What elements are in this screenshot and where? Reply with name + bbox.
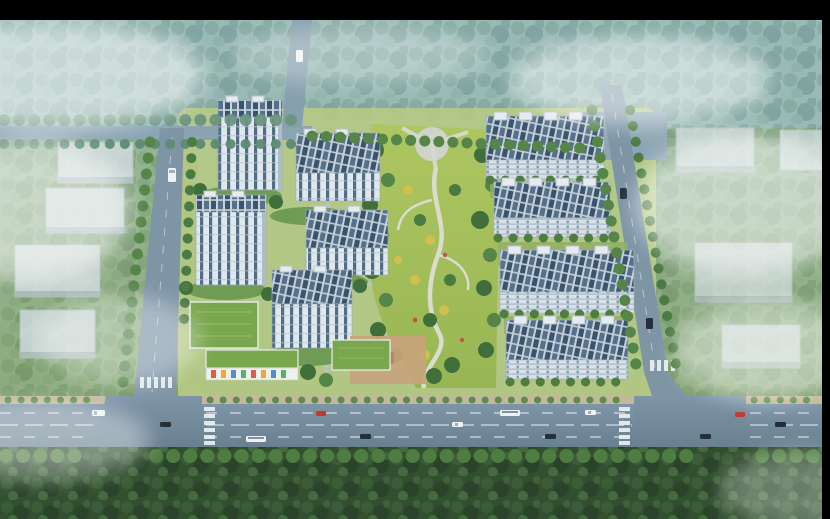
letterbox-frame xyxy=(0,0,830,519)
dark-car xyxy=(620,188,627,199)
tower-5 xyxy=(272,266,352,348)
tree-clump xyxy=(300,364,316,380)
white-truck xyxy=(168,168,176,182)
tree-clump xyxy=(426,368,442,384)
slab-row-2 xyxy=(494,178,610,238)
tower-4 xyxy=(306,206,388,275)
white-car xyxy=(585,410,596,415)
green-roof-building-3 xyxy=(332,340,390,370)
slab-row-4 xyxy=(506,316,628,382)
red-car xyxy=(735,412,745,417)
tower-2 xyxy=(196,191,266,285)
east-intersection xyxy=(634,396,746,447)
dark-car xyxy=(545,434,556,439)
bus xyxy=(246,436,266,442)
bus xyxy=(500,410,520,416)
aerial-canvas xyxy=(0,20,822,519)
green-roof-building-2-kindergarten xyxy=(206,350,298,380)
aerial-rendering xyxy=(0,20,822,519)
dark-car xyxy=(360,434,371,439)
slab-row-1 xyxy=(486,112,604,180)
dark-car xyxy=(160,422,171,427)
white-car xyxy=(452,422,463,427)
dark-car xyxy=(700,434,711,439)
green-roof-building-1 xyxy=(190,302,258,348)
dark-car xyxy=(646,318,653,329)
red-car xyxy=(316,411,326,416)
tree-clump xyxy=(319,373,333,387)
dark-car xyxy=(775,422,786,427)
